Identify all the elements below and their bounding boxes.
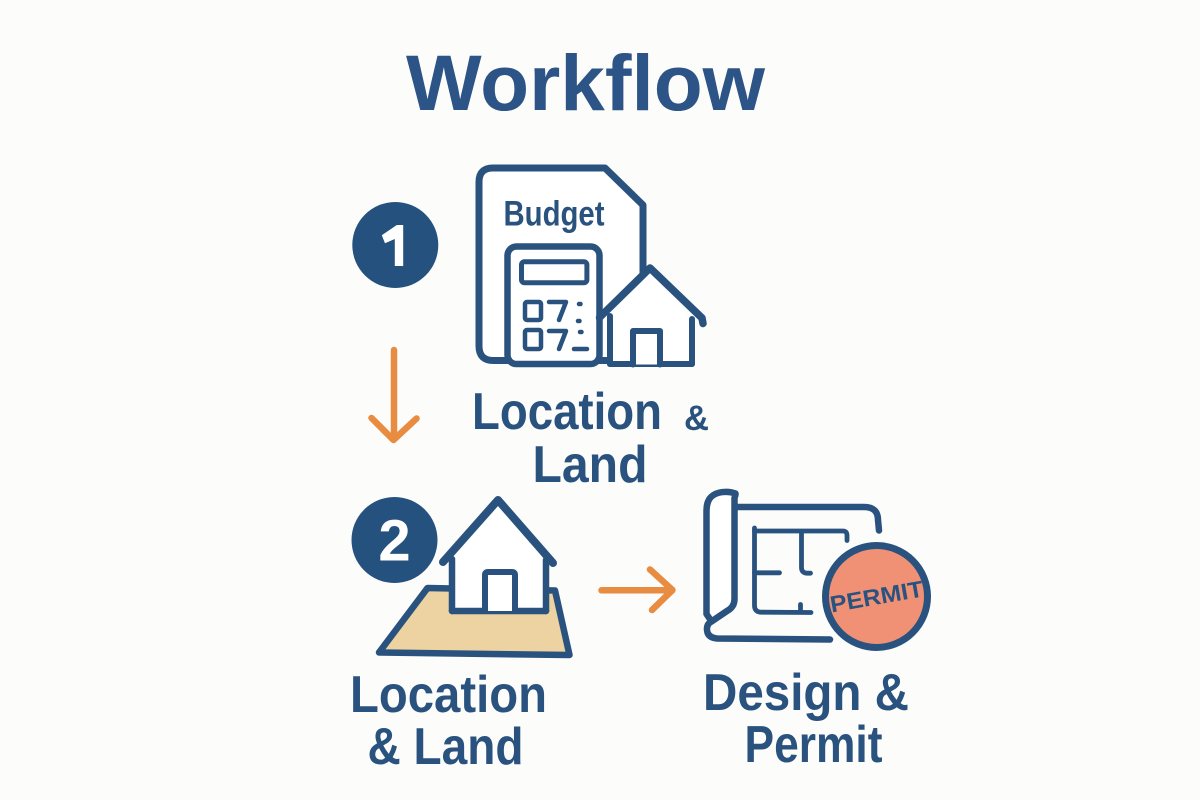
svg-text:Budget: Budget	[504, 195, 605, 234]
svg-text:&: &	[684, 399, 709, 438]
svg-text:& Land: & Land	[368, 718, 524, 776]
svg-text:2: 2	[378, 509, 410, 574]
svg-text:Location: Location	[472, 383, 662, 441]
svg-text:Workflow: Workflow	[406, 38, 766, 127]
svg-text:Location: Location	[350, 666, 547, 724]
svg-text:Permit: Permit	[745, 716, 883, 774]
svg-text:Design &: Design &	[703, 664, 909, 722]
svg-text:Land: Land	[533, 436, 648, 494]
